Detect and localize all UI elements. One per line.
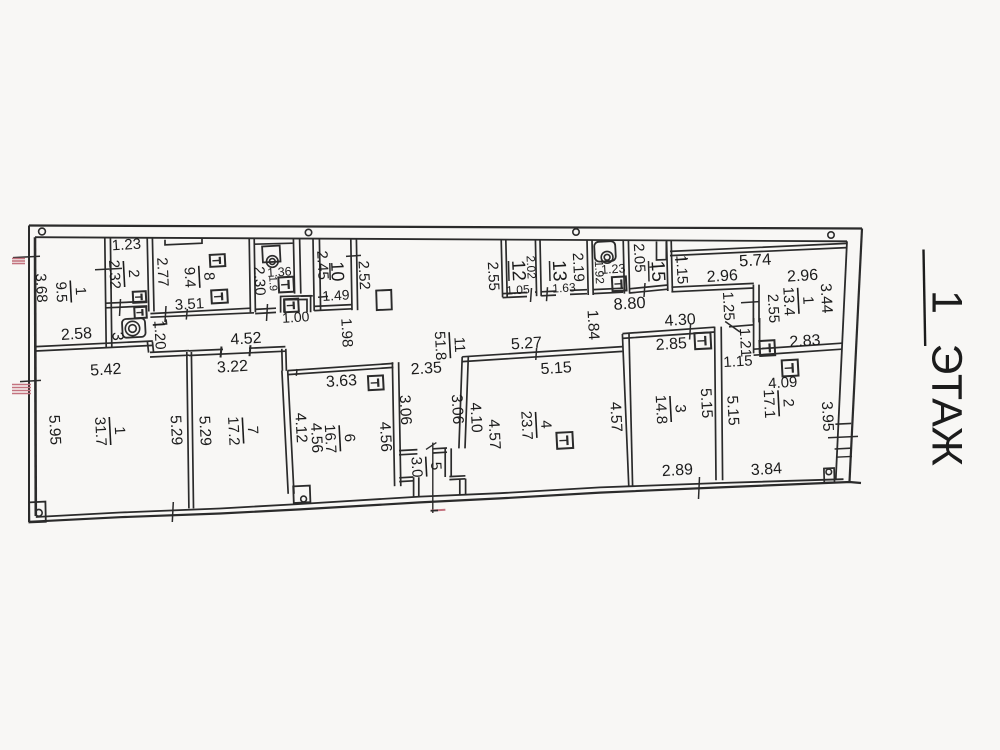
svg-text:3.68: 3.68 xyxy=(32,273,51,303)
svg-text:3.22: 3.22 xyxy=(216,358,248,377)
svg-text:15: 15 xyxy=(646,260,668,282)
svg-text:2.19: 2.19 xyxy=(569,252,588,282)
svg-text:2.05: 2.05 xyxy=(630,243,649,273)
svg-text:2.52: 2.52 xyxy=(354,260,373,290)
svg-text:4: 4 xyxy=(537,420,554,429)
svg-text:1: 1 xyxy=(799,296,816,305)
svg-text:9.4: 9.4 xyxy=(181,266,199,288)
svg-text:2.96: 2.96 xyxy=(787,267,819,286)
svg-text:2.55: 2.55 xyxy=(764,293,783,323)
svg-text:4.10: 4.10 xyxy=(466,402,485,433)
svg-text:4.56: 4.56 xyxy=(376,421,395,452)
svg-text:2.96: 2.96 xyxy=(706,267,738,286)
svg-text:3.44: 3.44 xyxy=(817,283,836,314)
svg-text:2: 2 xyxy=(779,398,796,407)
svg-text:1.05: 1.05 xyxy=(506,282,530,297)
svg-text:5.95: 5.95 xyxy=(45,414,64,445)
svg-text:2.02: 2.02 xyxy=(524,255,539,279)
svg-text:2.83: 2.83 xyxy=(789,332,821,351)
svg-text:23.7: 23.7 xyxy=(517,410,536,440)
svg-text:7: 7 xyxy=(244,425,261,434)
svg-text:1.49: 1.49 xyxy=(322,286,350,304)
svg-text:4.57: 4.57 xyxy=(485,419,504,450)
svg-text:51.8: 51.8 xyxy=(431,331,450,361)
svg-text:11: 11 xyxy=(450,336,468,352)
svg-text:5.15: 5.15 xyxy=(723,395,742,426)
svg-text:13: 13 xyxy=(548,260,570,282)
svg-text:1: 1 xyxy=(111,426,128,435)
svg-text:1: 1 xyxy=(72,286,89,295)
svg-text:1.20: 1.20 xyxy=(150,320,169,350)
svg-text:1.98: 1.98 xyxy=(337,318,356,348)
svg-text:4.52: 4.52 xyxy=(230,330,262,349)
svg-text:4.30: 4.30 xyxy=(664,311,696,330)
svg-text:2.89: 2.89 xyxy=(661,461,693,480)
svg-text:2.77: 2.77 xyxy=(153,257,172,287)
svg-text:1.23: 1.23 xyxy=(601,261,626,276)
svg-text:9.5: 9.5 xyxy=(52,281,70,303)
svg-text:4.12: 4.12 xyxy=(291,412,310,443)
svg-text:5.27: 5.27 xyxy=(510,334,542,353)
svg-text:2: 2 xyxy=(125,269,142,278)
svg-text:3.95: 3.95 xyxy=(818,401,837,432)
svg-text:2.30: 2.30 xyxy=(250,266,269,296)
svg-text:3.63: 3.63 xyxy=(325,372,357,391)
svg-text:17.2: 17.2 xyxy=(224,416,243,446)
svg-text:2.55: 2.55 xyxy=(484,261,503,291)
svg-text:1.23: 1.23 xyxy=(111,236,141,255)
svg-text:16.7: 16.7 xyxy=(321,424,340,454)
svg-text:4.57: 4.57 xyxy=(606,401,625,432)
svg-text:3.06: 3.06 xyxy=(448,394,467,425)
svg-text:3: 3 xyxy=(108,331,125,341)
svg-text:5.29: 5.29 xyxy=(195,415,214,446)
svg-text:2.85: 2.85 xyxy=(655,335,687,354)
svg-text:3.84: 3.84 xyxy=(750,460,782,479)
svg-text:5.74: 5.74 xyxy=(739,251,772,271)
svg-text:17.1: 17.1 xyxy=(760,389,779,419)
svg-text:1.25: 1.25 xyxy=(719,291,738,321)
svg-text:3.0: 3.0 xyxy=(407,456,425,478)
svg-text:3: 3 xyxy=(671,404,688,413)
svg-text:6: 6 xyxy=(341,433,358,442)
svg-text:5: 5 xyxy=(427,461,444,470)
svg-text:5.15: 5.15 xyxy=(697,388,716,419)
svg-text:1.15: 1.15 xyxy=(672,255,691,285)
svg-text:1.15: 1.15 xyxy=(723,352,753,371)
svg-text:5.42: 5.42 xyxy=(90,361,122,380)
svg-text:1.63: 1.63 xyxy=(552,280,576,295)
svg-text:1: 1 xyxy=(923,290,971,314)
svg-text:5.29: 5.29 xyxy=(167,415,186,446)
svg-text:3.06: 3.06 xyxy=(396,394,415,425)
svg-text:8: 8 xyxy=(200,272,217,281)
svg-text:1.84: 1.84 xyxy=(584,309,603,340)
svg-text:4.09: 4.09 xyxy=(768,374,798,393)
svg-text:1.9: 1.9 xyxy=(266,276,279,292)
svg-text:1.00: 1.00 xyxy=(282,308,310,326)
svg-text:2.35: 2.35 xyxy=(410,359,442,378)
svg-text:2.58: 2.58 xyxy=(60,325,92,344)
svg-text:8.80: 8.80 xyxy=(613,294,646,314)
svg-text:5.15: 5.15 xyxy=(540,359,572,378)
svg-text:ЭТАЖ: ЭТАЖ xyxy=(923,343,971,466)
svg-text:2.32: 2.32 xyxy=(105,259,124,289)
svg-text:14.8: 14.8 xyxy=(652,394,671,424)
svg-text:31.7: 31.7 xyxy=(91,416,110,446)
svg-text:3.51: 3.51 xyxy=(174,295,204,314)
